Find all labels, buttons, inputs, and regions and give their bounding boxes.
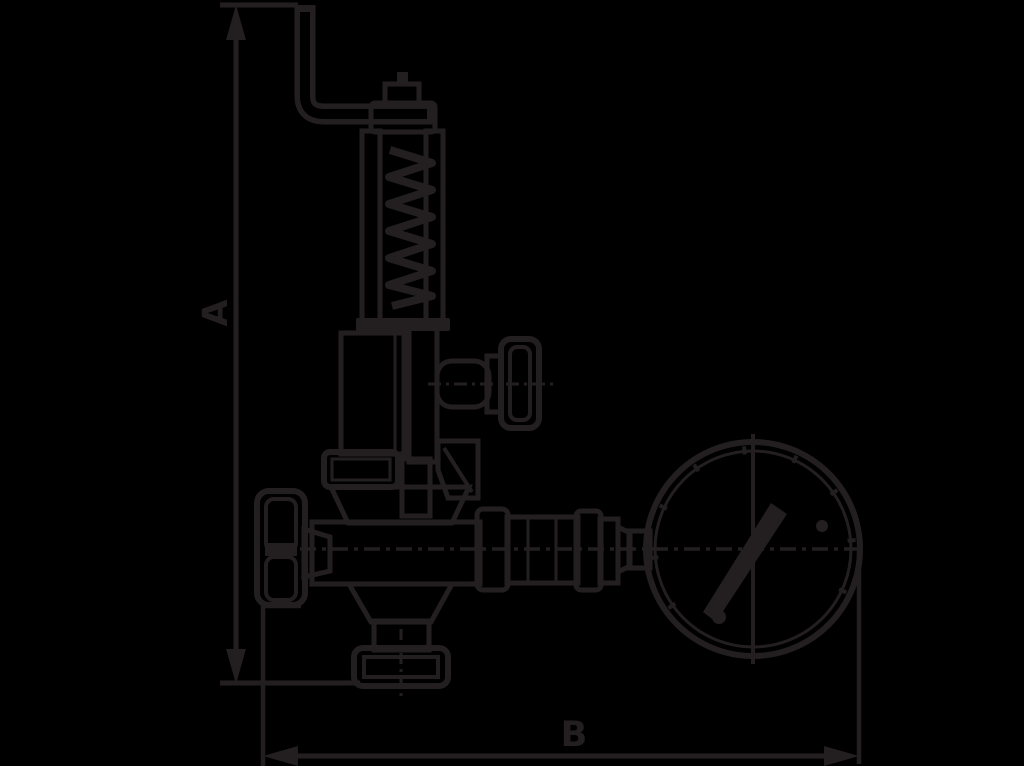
dial-tick (848, 540, 856, 541)
dial-screw-lower (712, 610, 726, 624)
easing-lever (305, 5, 433, 114)
handwheel-hub-band (265, 543, 297, 556)
arrow-down-icon (226, 649, 246, 684)
dial-screw-right (816, 520, 828, 532)
dial-tick (744, 446, 745, 454)
body-band (312, 522, 480, 584)
bonnet-column (409, 323, 437, 462)
dial-tick (650, 557, 658, 558)
base-flange (354, 629, 448, 701)
body-lower (349, 584, 452, 622)
lever-inner (305, 12, 427, 114)
spring-bonnet (341, 72, 450, 462)
arrow-up-icon (226, 5, 246, 40)
flange-inner (332, 459, 390, 480)
gauge-needle (703, 503, 787, 622)
arrow-left-icon (263, 746, 298, 766)
dimension-b-label: B (561, 715, 588, 755)
arrow-right-icon (824, 746, 859, 766)
side-valve (428, 339, 553, 428)
drawing-canvas: A B (0, 0, 1024, 766)
post-left (362, 131, 380, 323)
handwheel-inner-bottom (266, 557, 296, 600)
main-handwheel (257, 491, 330, 605)
dimension-a-label: A (196, 299, 236, 326)
lever-outline (305, 5, 433, 114)
flange-outer (324, 452, 398, 487)
valve-technical-drawing: A B (0, 0, 1024, 766)
